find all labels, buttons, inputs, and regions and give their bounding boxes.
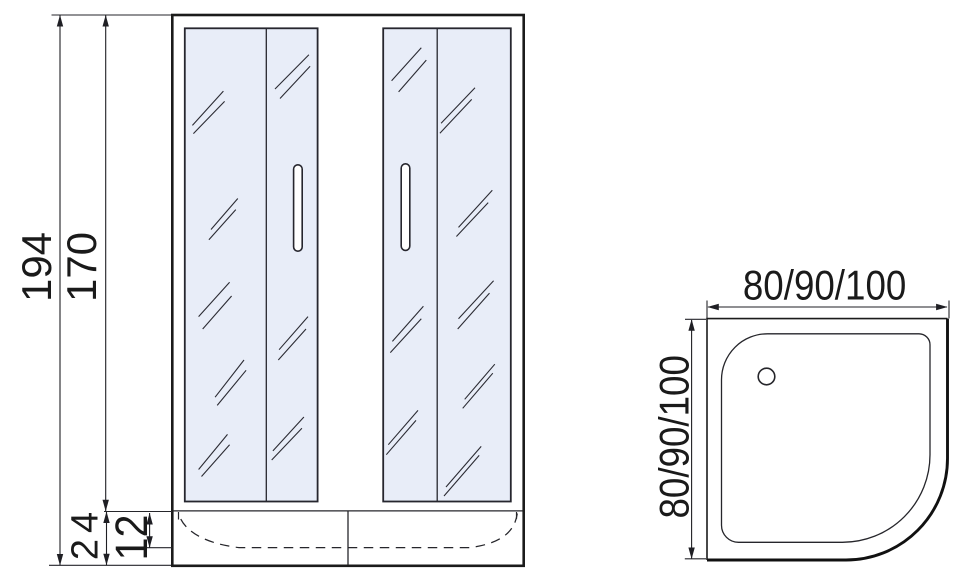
- svg-text:12: 12: [107, 514, 157, 560]
- svg-text:194: 194: [13, 232, 60, 302]
- svg-text:170: 170: [58, 232, 105, 302]
- svg-text:24: 24: [64, 506, 106, 560]
- svg-text:80/90/100: 80/90/100: [743, 262, 906, 309]
- svg-text:80/90/100: 80/90/100: [651, 355, 698, 518]
